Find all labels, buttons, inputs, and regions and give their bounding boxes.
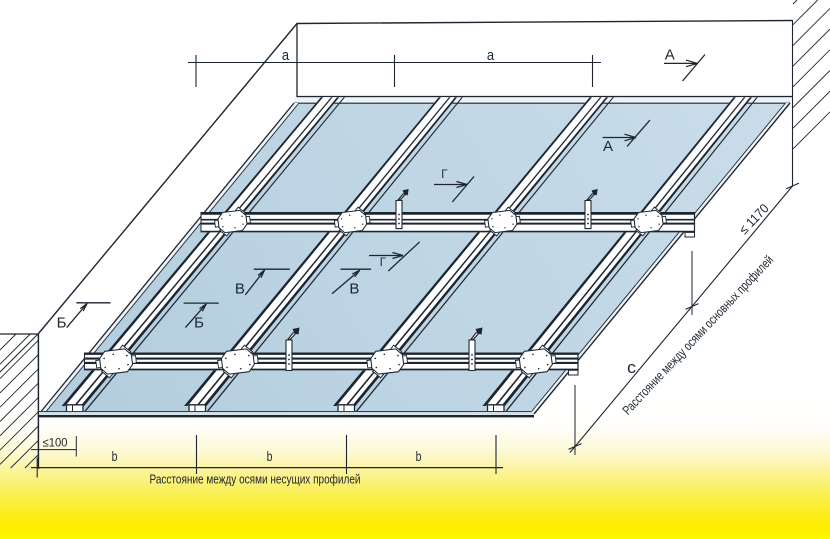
svg-text:В: В	[235, 281, 245, 298]
svg-text:Г: Г	[380, 257, 387, 269]
svg-text:Расстояние между осями несущих: Расстояние между осями несущих профилей	[150, 472, 361, 487]
svg-text:Б: Б	[194, 314, 204, 331]
svg-text:Г: Г	[441, 169, 448, 181]
svg-text:Б: Б	[57, 315, 67, 332]
svg-text:В: В	[349, 281, 359, 298]
svg-text:a: a	[282, 48, 290, 64]
svg-text:≤100: ≤100	[43, 436, 68, 450]
svg-text:А: А	[603, 138, 613, 155]
svg-text:b: b	[267, 449, 273, 464]
svg-text:b: b	[416, 449, 422, 464]
svg-text:c: c	[627, 358, 637, 377]
svg-text:b: b	[112, 449, 118, 464]
svg-text:a: a	[487, 48, 495, 64]
svg-text:А: А	[665, 47, 675, 64]
